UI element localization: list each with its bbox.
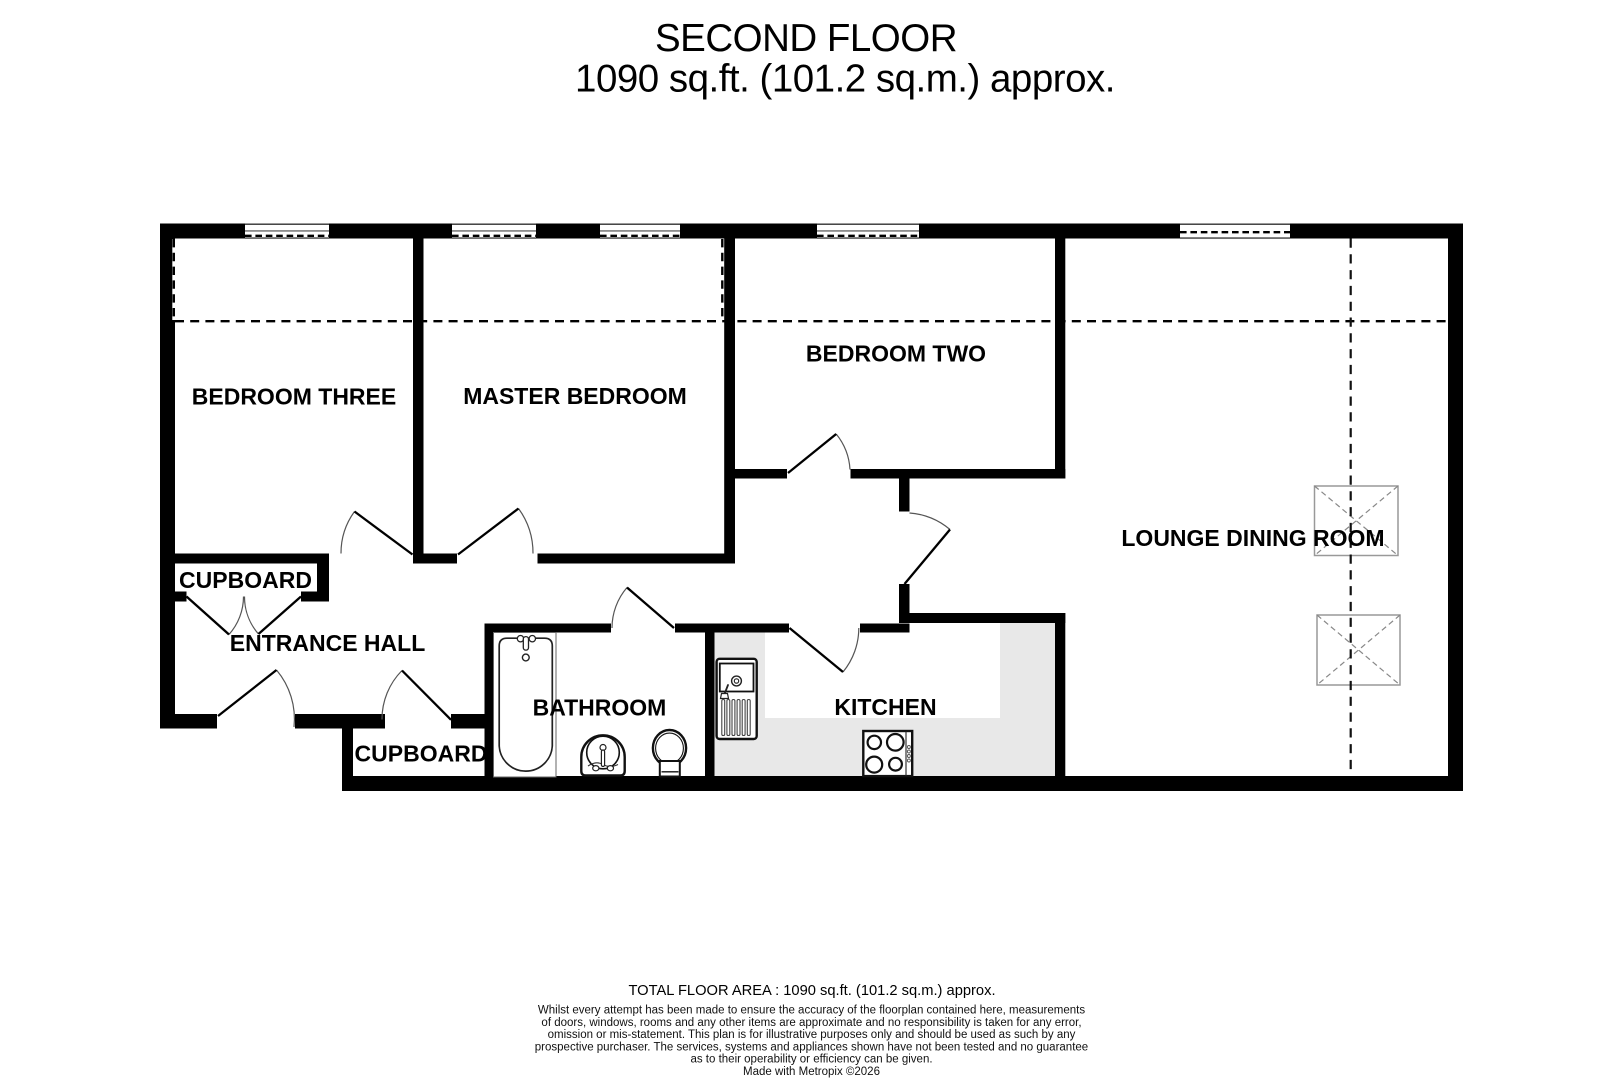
svg-text:BEDROOM TWO: BEDROOM TWO bbox=[806, 341, 986, 367]
svg-text:SECOND FLOOR: SECOND FLOOR bbox=[655, 17, 957, 60]
svg-text:1090 sq.ft. (101.2 sq.m.) appr: 1090 sq.ft. (101.2 sq.m.) approx. bbox=[575, 58, 1115, 101]
svg-text:omission or mis-statement. Thi: omission or mis-statement. This plan is … bbox=[548, 1029, 1076, 1041]
svg-text:KITCHEN: KITCHEN bbox=[834, 694, 936, 720]
svg-text:Whilst every attempt has been: Whilst every attempt has been made to en… bbox=[538, 1005, 1085, 1017]
svg-text:of doors, windows, rooms and a: of doors, windows, rooms and any other i… bbox=[541, 1017, 1081, 1029]
svg-text:prospective purchaser. The ser: prospective purchaser. The services, sys… bbox=[535, 1041, 1088, 1053]
svg-text:Made with Metropix ©2026: Made with Metropix ©2026 bbox=[743, 1066, 880, 1078]
svg-text:BATHROOM: BATHROOM bbox=[533, 695, 667, 721]
svg-text:TOTAL FLOOR AREA : 1090 sq.ft.: TOTAL FLOOR AREA : 1090 sq.ft. (101.2 sq… bbox=[628, 983, 995, 999]
svg-text:LOUNGE DINING ROOM: LOUNGE DINING ROOM bbox=[1121, 525, 1384, 551]
svg-text:ENTRANCE HALL: ENTRANCE HALL bbox=[230, 630, 426, 656]
svg-text:MASTER BEDROOM: MASTER BEDROOM bbox=[463, 383, 687, 409]
svg-text:CUPBOARD: CUPBOARD bbox=[179, 567, 312, 593]
svg-text:as to their operability or eff: as to their operability or efficiency ca… bbox=[690, 1054, 932, 1066]
svg-text:BEDROOM THREE: BEDROOM THREE bbox=[192, 384, 396, 410]
svg-text:CUPBOARD: CUPBOARD bbox=[355, 741, 488, 767]
